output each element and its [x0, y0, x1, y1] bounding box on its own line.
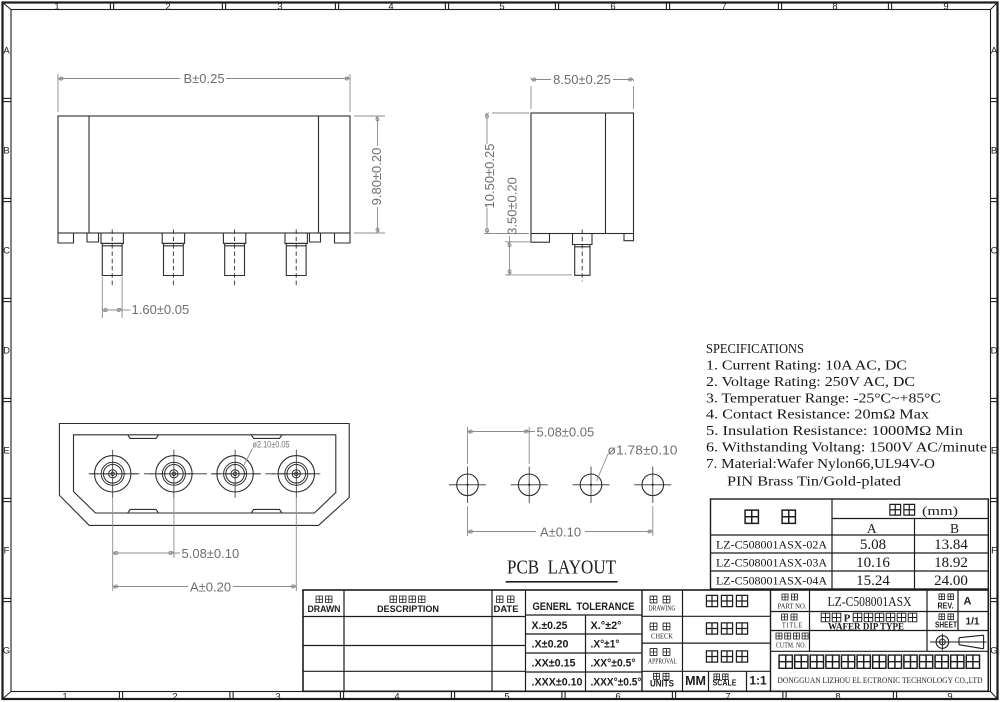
- svg-text:4: 4: [388, 2, 393, 13]
- svg-text:6: 6: [615, 692, 620, 702]
- svg-text:A: A: [3, 46, 10, 57]
- svg-text:A: A: [991, 46, 998, 57]
- svg-text:(mm): (mm): [922, 503, 958, 518]
- svg-text:GENERL TOLERANCE: GENERL TOLERANCE: [533, 601, 635, 613]
- svg-text:F: F: [4, 546, 10, 557]
- svg-text:24.00: 24.00: [934, 573, 968, 589]
- svg-text:ø1.78±0.10: ø1.78±0.10: [608, 443, 678, 458]
- svg-text:X.±0.25: X.±0.25: [532, 620, 568, 632]
- svg-text:X.°±2°: X.°±2°: [591, 620, 622, 632]
- svg-text:UNITS: UNITS: [650, 679, 674, 689]
- svg-text:TITLE: TITLE: [782, 622, 803, 630]
- svg-text:DONGGUAN LIZHOU EL ECTRONIC TE: DONGGUAN LIZHOU EL ECTRONIC TECHNOLOGY C…: [778, 675, 983, 685]
- svg-text:10.50±0.25: 10.50±0.25: [482, 144, 497, 209]
- svg-text:LZ-C508001ASX-03A: LZ-C508001ASX-03A: [716, 556, 827, 570]
- svg-text:DATE: DATE: [494, 604, 519, 615]
- svg-text:5.08±0.10: 5.08±0.10: [182, 546, 240, 561]
- svg-text:SPECIFICATIONS: SPECIFICATIONS: [706, 341, 804, 356]
- svg-text:.XXX°±0.5°: .XXX°±0.5°: [591, 677, 642, 689]
- svg-text:CHECK: CHECK: [651, 633, 673, 641]
- svg-text:.XXX±0.10: .XXX±0.10: [532, 677, 583, 689]
- svg-text:.XX±0.15: .XX±0.15: [532, 658, 576, 670]
- svg-text:1.60±0.05: 1.60±0.05: [132, 302, 190, 317]
- svg-text:CUTM. NO.: CUTM. NO.: [776, 642, 806, 650]
- svg-text:18.92: 18.92: [934, 555, 968, 571]
- svg-text:5.08±0.05: 5.08±0.05: [537, 425, 595, 440]
- svg-text:3. Temperatuer Range: -25°C~+8: 3. Temperatuer Range: -25°C~+85°C: [706, 391, 941, 406]
- svg-text:G: G: [990, 646, 997, 657]
- svg-text:A: A: [867, 521, 877, 536]
- svg-text:8: 8: [832, 2, 837, 13]
- svg-text:3.50±0.20: 3.50±0.20: [505, 177, 520, 235]
- svg-text:.X±0.20: .X±0.20: [532, 639, 569, 651]
- svg-text:DRAWING: DRAWING: [649, 605, 676, 613]
- svg-text:PCB LAYOUT: PCB LAYOUT: [507, 557, 616, 579]
- svg-text:15.24: 15.24: [856, 573, 890, 589]
- svg-text:3: 3: [275, 692, 280, 702]
- svg-text:REV.: REV.: [938, 601, 954, 611]
- svg-text:E: E: [3, 446, 9, 457]
- svg-text:1/1: 1/1: [966, 617, 980, 628]
- svg-text:B: B: [950, 521, 959, 536]
- svg-text:9: 9: [943, 2, 948, 13]
- svg-text:3: 3: [277, 2, 282, 13]
- svg-text:DESCRIPTION: DESCRIPTION: [377, 604, 439, 615]
- svg-text:E: E: [991, 446, 997, 457]
- svg-text:1: 1: [62, 692, 67, 702]
- svg-text:13.84: 13.84: [934, 537, 968, 553]
- svg-text:7. Material:Wafer Nylon66,UL94: 7. Material:Wafer Nylon66,UL94V-O: [706, 456, 935, 471]
- svg-text:6: 6: [610, 2, 615, 13]
- svg-text:2: 2: [165, 2, 170, 13]
- svg-text:6. Withstanding Voltang: 1500V: 6. Withstanding Voltang: 1500V AC/minute: [706, 440, 987, 455]
- svg-text:4. Contact Resistance: 20mΩ Ma: 4. Contact Resistance: 20mΩ Max: [706, 407, 929, 422]
- svg-text:PART NO.: PART NO.: [778, 603, 807, 611]
- svg-text:A±0.10: A±0.10: [540, 525, 581, 540]
- svg-text:F: F: [991, 546, 997, 557]
- svg-text:9: 9: [947, 692, 952, 702]
- svg-text:1. Current Rating: 10A AC, DC: 1. Current Rating: 10A AC, DC: [706, 358, 907, 373]
- svg-text:8: 8: [835, 692, 840, 702]
- svg-text:7: 7: [725, 692, 730, 702]
- svg-text:C: C: [3, 246, 10, 257]
- svg-text:WAFER DIP TYPE: WAFER DIP TYPE: [828, 623, 904, 633]
- svg-text:.X°±1°: .X°±1°: [591, 639, 620, 651]
- svg-text:5: 5: [504, 692, 509, 702]
- svg-text:A±0.20: A±0.20: [190, 580, 231, 595]
- svg-text:LZ-C508001ASX-02A: LZ-C508001ASX-02A: [716, 538, 827, 552]
- svg-text:5.08: 5.08: [860, 537, 886, 553]
- svg-text:2: 2: [172, 692, 177, 702]
- svg-text:LZ-C508001ASX: LZ-C508001ASX: [828, 594, 912, 609]
- svg-text:A: A: [964, 596, 972, 608]
- svg-text:LZ-C508001ASX-04A: LZ-C508001ASX-04A: [716, 574, 827, 588]
- svg-text:B: B: [991, 146, 997, 157]
- svg-text:D: D: [991, 346, 998, 357]
- svg-text:5: 5: [499, 2, 504, 13]
- svg-text:G: G: [3, 646, 10, 657]
- svg-text:.XX°±0.5°: .XX°±0.5°: [591, 658, 636, 670]
- svg-text:MM: MM: [685, 674, 706, 688]
- svg-text:SCALE: SCALE: [713, 678, 737, 688]
- svg-text:SHEET: SHEET: [935, 620, 958, 630]
- svg-text:C: C: [991, 246, 998, 257]
- svg-text:D: D: [3, 346, 10, 357]
- svg-text:10.16: 10.16: [856, 555, 890, 571]
- svg-text:B±0.25: B±0.25: [183, 71, 224, 86]
- svg-text:5. Insulation Resistance: 1000: 5. Insulation Resistance: 1000MΩ Min: [706, 423, 963, 438]
- svg-text:4: 4: [394, 692, 399, 702]
- svg-text:1: 1: [54, 2, 59, 13]
- svg-text:DRAWN: DRAWN: [308, 604, 341, 615]
- svg-text:APPROVAL: APPROVAL: [648, 658, 677, 666]
- svg-text:PIN Brass Tin/Gold-plated: PIN Brass Tin/Gold-plated: [727, 474, 901, 489]
- svg-text:9.80±0.20: 9.80±0.20: [369, 148, 384, 206]
- svg-text:7: 7: [721, 2, 726, 13]
- svg-text:B: B: [3, 146, 9, 157]
- svg-text:ø2.10±0.05: ø2.10±0.05: [253, 440, 290, 451]
- svg-text:1:1: 1:1: [749, 674, 767, 688]
- svg-text:2. Voltage Rating: 250V AC, DC: 2. Voltage Rating: 250V AC, DC: [706, 374, 915, 389]
- svg-text:8.50±0.25: 8.50±0.25: [553, 72, 611, 87]
